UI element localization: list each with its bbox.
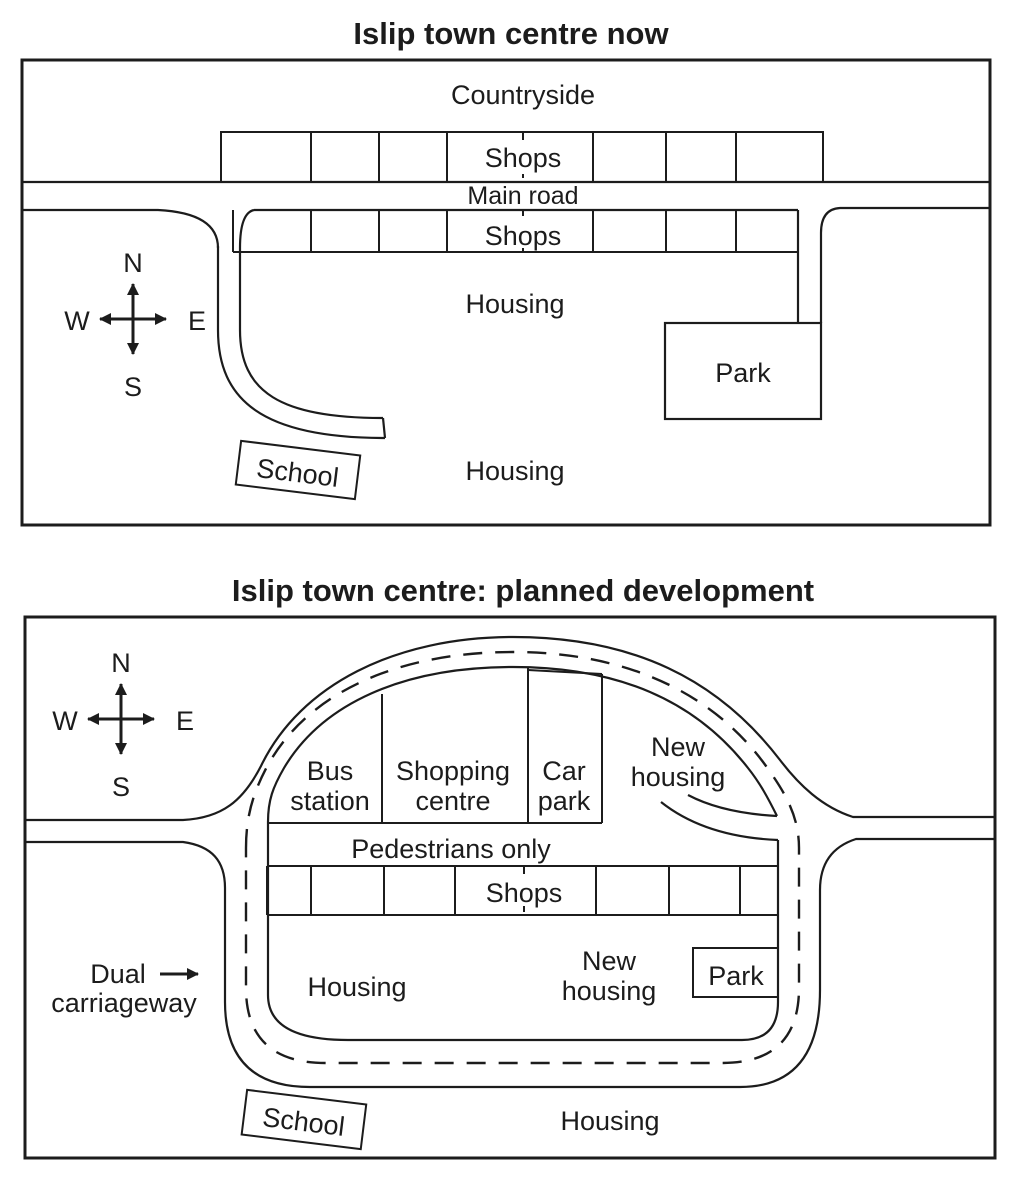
school-road-end-cap [383, 418, 385, 438]
map-now-title: Islip town centre now [353, 16, 669, 51]
dual-carriageway-label-2: carriageway [51, 988, 197, 1018]
compass-planned-s: S [112, 772, 130, 802]
pedestrians-only-label: Pedestrians only [351, 834, 551, 864]
shops-north-label: Shops [485, 143, 562, 173]
compass-planned-e: E [176, 706, 194, 736]
maps-canvas: Islip town centre now Countryside Shops … [0, 0, 1014, 1182]
shopping-centre-label-1: Shopping [396, 756, 510, 786]
park-planned: Park [693, 948, 778, 997]
compass-n: N [123, 248, 143, 278]
park-label: Park [715, 358, 771, 388]
new-housing-north-label-2: housing [631, 762, 726, 792]
main-road-bottom-edge-west [22, 210, 218, 248]
compass-s: S [124, 372, 142, 402]
new-housing-north-label-1: New [651, 732, 706, 762]
map-planned-title: Islip town centre: planned development [232, 573, 814, 608]
compass-icon: N S W E [64, 248, 206, 402]
housing-west-label: Housing [307, 972, 406, 1002]
school-planned-label: School [261, 1102, 347, 1142]
school-label: School [255, 453, 341, 493]
new-housing-access-top-edge [688, 795, 777, 816]
school-road [218, 210, 385, 438]
compass-planned-w: W [52, 706, 78, 736]
housing-centre-label: Housing [465, 289, 564, 319]
compass-e: E [188, 306, 206, 336]
park-now: Park [665, 323, 821, 419]
compass-icon-planned: N S W E [52, 648, 194, 802]
islip-maps-figure: Islip town centre now Countryside Shops … [0, 0, 1014, 1182]
shops-row-planned: Shops [267, 866, 777, 915]
compass-planned-n: N [111, 648, 131, 678]
shops-row-north: Shops [221, 132, 823, 182]
ring-road-outer-north-edge [25, 637, 995, 820]
shops-planned-label: Shops [486, 878, 563, 908]
new-housing-south-label-2: housing [562, 976, 657, 1006]
bus-station-label-2: station [290, 786, 370, 816]
new-housing-south-label-1: New [582, 946, 637, 976]
car-park-label-1: Car [542, 756, 586, 786]
bus-station-label-1: Bus [307, 756, 354, 786]
main-road-bottom-edge-east [821, 208, 990, 323]
shopping-centre-label-2: centre [415, 786, 490, 816]
countryside-label: Countryside [451, 80, 595, 110]
main-road-label: Main road [467, 182, 578, 210]
shops-row-south: Shops [233, 210, 798, 252]
park-planned-label: Park [708, 961, 764, 991]
shops-south-label: Shops [485, 221, 562, 251]
housing-south-label: Housing [465, 456, 564, 486]
compass-w: W [64, 306, 90, 336]
centre-buildings: Bus station Shopping centre Car park [268, 668, 602, 823]
dual-carriageway-callout: Dual carriageway [51, 959, 198, 1018]
car-park-label-2: park [538, 786, 591, 816]
map-now: Islip town centre now Countryside Shops … [22, 16, 990, 525]
dual-carriageway-label-1: Dual [90, 959, 146, 989]
school-now: School [236, 441, 360, 499]
school-planned: School [242, 1090, 367, 1149]
housing-south-planned-label: Housing [560, 1106, 659, 1136]
map-planned: Islip town centre: planned development B… [25, 573, 995, 1158]
